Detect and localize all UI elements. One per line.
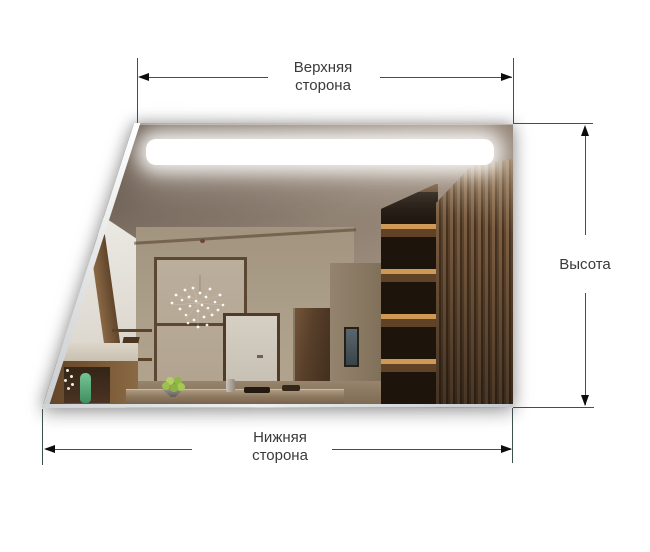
product-dimension-diagram: { "page": { "type": "mirror-dimension-di… xyxy=(0,0,650,552)
slat-shading xyxy=(436,159,513,408)
height-dimension-line-bottom xyxy=(585,293,586,405)
height-extension-line-top xyxy=(513,123,593,124)
table-tray-2 xyxy=(282,385,300,391)
table-tray xyxy=(244,387,270,393)
top-side-label: Верхняя сторона xyxy=(294,59,353,95)
wood-slat-wall xyxy=(436,159,513,408)
top-dimension-line-right xyxy=(380,77,512,78)
mirror-trapezoid xyxy=(42,123,513,408)
dimension-arrow-left-icon xyxy=(44,445,55,453)
dimension-arrow-up-icon xyxy=(581,125,589,136)
mirror-top-bevel xyxy=(42,123,513,125)
bottom-dimension-line-left xyxy=(46,449,192,450)
table-cylinder-vase xyxy=(226,379,235,392)
height-label-text: Высота xyxy=(559,256,611,274)
bottom-side-label: Нижняя сторона xyxy=(252,429,308,465)
door-handle xyxy=(257,355,263,358)
bottom-side-label-line1: Нижняя xyxy=(252,429,308,447)
mirror-product-image xyxy=(42,123,513,408)
lit-shelving-unit xyxy=(381,179,438,408)
mirror-bottom-bevel xyxy=(42,404,513,408)
chandelier xyxy=(160,275,238,341)
bottom-side-label-line2: сторона xyxy=(252,447,308,465)
height-extension-line-bottom xyxy=(513,407,594,408)
top-extension-line-left xyxy=(137,58,138,123)
bottom-extension-line-right xyxy=(512,408,513,463)
top-side-label-line2: сторона xyxy=(294,77,353,95)
green-apples xyxy=(160,377,186,391)
orchid-flowers xyxy=(66,369,69,372)
dimension-arrow-right-icon xyxy=(501,445,512,453)
wall-art xyxy=(344,327,359,367)
top-extension-line-right xyxy=(513,58,514,123)
kitchen-upper-cabinet xyxy=(42,343,138,361)
green-vase xyxy=(80,373,91,403)
dimension-arrow-down-icon xyxy=(581,395,589,406)
height-label: Высота xyxy=(559,256,611,274)
bottom-dimension-line-right xyxy=(332,449,511,450)
dimension-arrow-right-icon xyxy=(501,73,512,81)
top-side-label-line1: Верхняя xyxy=(294,59,353,77)
ceiling-pendant-mount xyxy=(200,239,205,243)
top-dimension-line-left xyxy=(140,77,268,78)
bottom-extension-line-left xyxy=(42,409,43,465)
led-strip-light xyxy=(146,139,494,165)
dimension-arrow-left-icon xyxy=(138,73,149,81)
height-dimension-line-top xyxy=(585,128,586,235)
